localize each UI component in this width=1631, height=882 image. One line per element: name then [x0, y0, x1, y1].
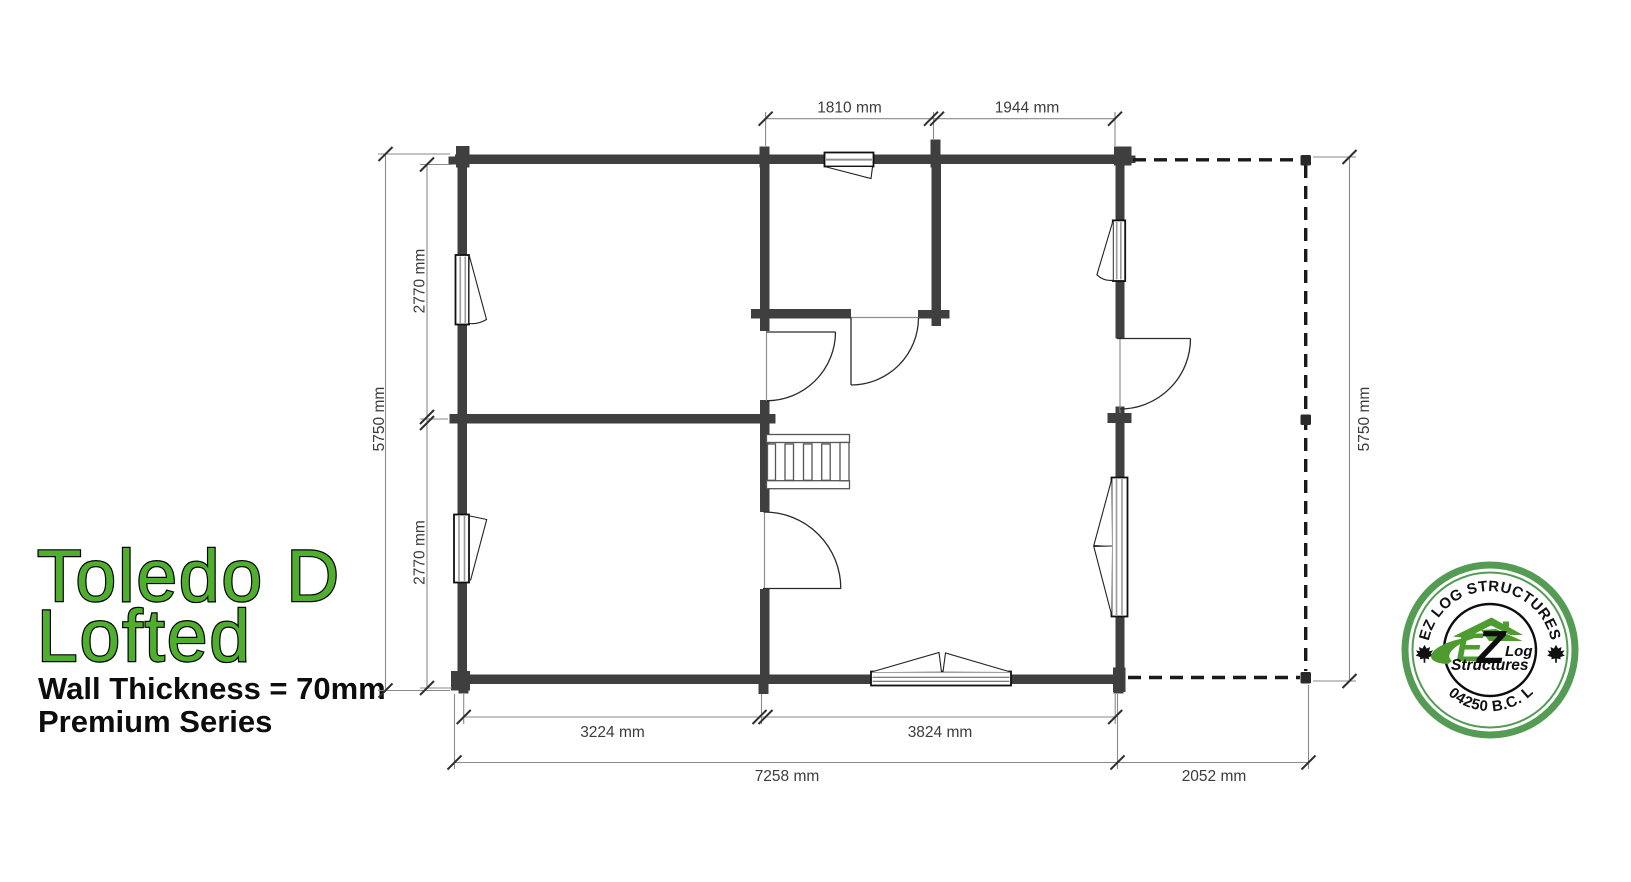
svg-text:Premium Series: Premium Series: [38, 704, 272, 739]
svg-text:3824 mm: 3824 mm: [908, 724, 973, 741]
svg-text:Structures: Structures: [1451, 657, 1529, 674]
svg-text:Wall Thickness = 70mm: Wall Thickness = 70mm: [38, 671, 386, 706]
svg-text:Lofted: Lofted: [37, 596, 252, 677]
svg-text:7258 mm: 7258 mm: [755, 768, 820, 785]
svg-text:2052 mm: 2052 mm: [1182, 768, 1247, 785]
svg-text:2770 mm: 2770 mm: [412, 520, 429, 585]
svg-text:5750 mm: 5750 mm: [1356, 387, 1373, 452]
svg-text:3224 mm: 3224 mm: [580, 724, 645, 741]
svg-text:5750 mm: 5750 mm: [371, 387, 388, 452]
svg-text:1944 mm: 1944 mm: [995, 100, 1060, 117]
svg-text:1810 mm: 1810 mm: [817, 100, 882, 117]
svg-text:2770 mm: 2770 mm: [412, 249, 429, 314]
